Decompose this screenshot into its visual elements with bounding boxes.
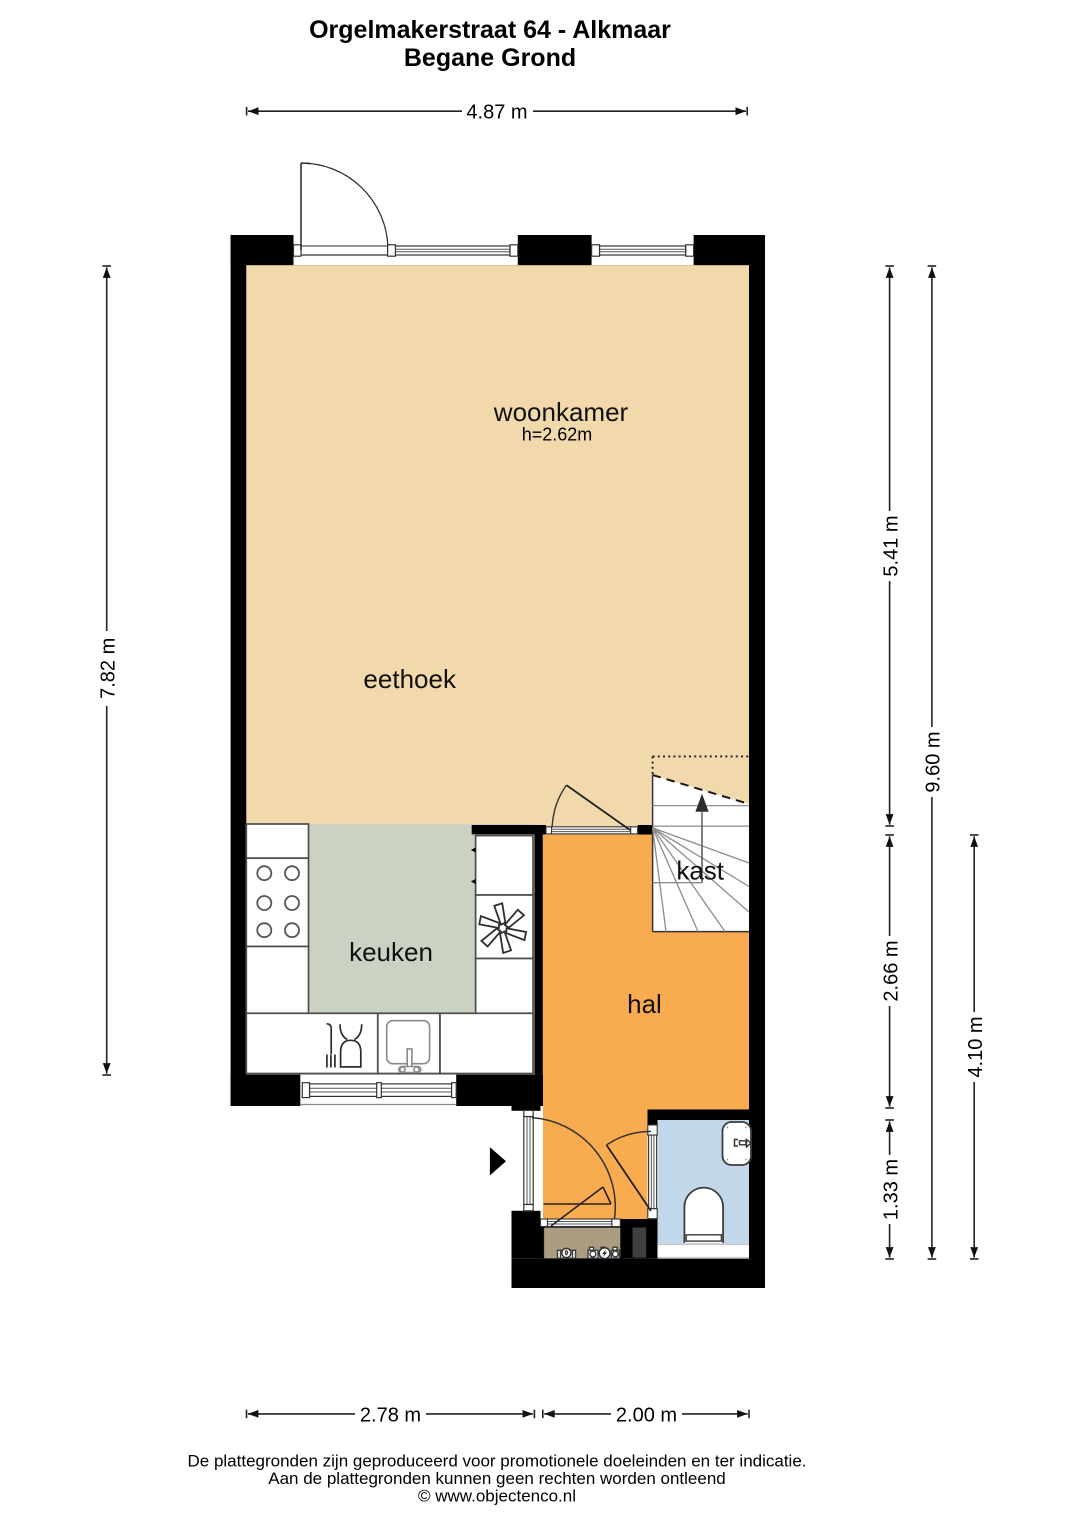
svg-text:© www.objectenco.nl: © www.objectenco.nl — [418, 1487, 576, 1506]
svg-text:7.82 m: 7.82 m — [98, 638, 120, 699]
svg-text:woonkamer: woonkamer — [493, 397, 629, 427]
svg-text:De plattegronden zijn geproduc: De plattegronden zijn geproduceerd voor … — [187, 1452, 806, 1471]
svg-text:4.87 m: 4.87 m — [466, 102, 527, 124]
svg-text:2.78 m: 2.78 m — [360, 1404, 421, 1426]
svg-text:2.00 m: 2.00 m — [616, 1404, 677, 1426]
svg-text:hal: hal — [627, 989, 662, 1019]
svg-text:eethoek: eethoek — [363, 664, 457, 694]
svg-text:4.10 m: 4.10 m — [965, 1016, 987, 1077]
svg-text:keuken: keuken — [349, 937, 433, 967]
svg-text:1.33 m: 1.33 m — [880, 1159, 902, 1220]
svg-text:Begane Grond: Begane Grond — [404, 44, 576, 72]
svg-text:9.60 m: 9.60 m — [923, 731, 945, 792]
svg-text:2.66 m: 2.66 m — [880, 940, 902, 1001]
svg-text:kast: kast — [676, 856, 724, 886]
svg-text:h=2.62m: h=2.62m — [522, 425, 593, 445]
svg-text:Aan de plattegronden kunnen ge: Aan de plattegronden kunnen geen rechten… — [268, 1469, 725, 1488]
svg-text:5.41 m: 5.41 m — [880, 515, 902, 576]
svg-text:Orgelmakerstraat 64 - Alkmaar: Orgelmakerstraat 64 - Alkmaar — [309, 16, 671, 44]
